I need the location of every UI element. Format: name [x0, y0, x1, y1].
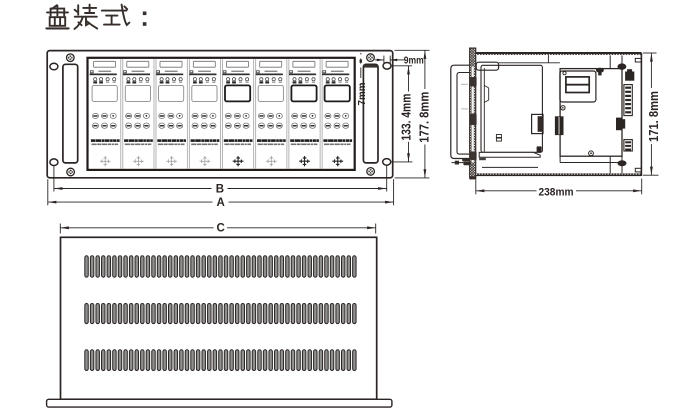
svg-text:177. 8mm: 177. 8mm	[417, 92, 431, 143]
svg-text:171. 8mm: 171. 8mm	[647, 91, 661, 142]
svg-text:C: C	[216, 223, 224, 235]
svg-text:B: B	[216, 183, 224, 195]
svg-text:A: A	[216, 197, 224, 209]
svg-text:9mm: 9mm	[404, 55, 424, 67]
svg-text:133. 4mm: 133. 4mm	[400, 94, 414, 141]
svg-text:7mm: 7mm	[356, 83, 368, 106]
svg-text:238mm: 238mm	[539, 186, 574, 198]
